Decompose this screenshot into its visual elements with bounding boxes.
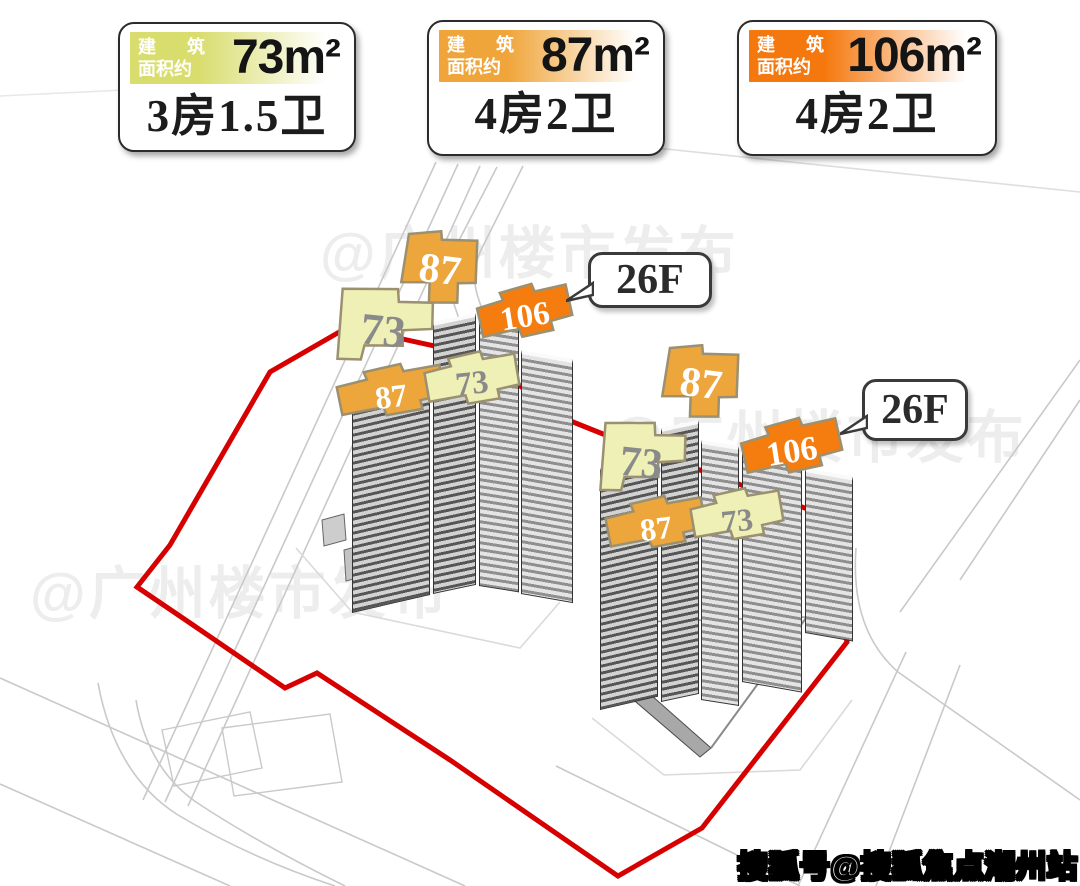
floor-area-label: 73 (421, 346, 523, 422)
tower-slab (701, 440, 739, 706)
floor-area-label: 73 (687, 483, 787, 556)
unit-type-label: 4房2卫 (439, 90, 653, 140)
floor-area-number: 73 (617, 439, 664, 486)
watermark-sohu: 搜狐号@搜狐焦点潮州站 (738, 842, 1078, 886)
floor-area-label: 87 (652, 337, 750, 431)
area-band: 建 筑 面积约 73m² (130, 32, 344, 84)
bubble-tail-icon (840, 414, 868, 436)
area-prefix: 建 筑 面积约 (130, 36, 205, 81)
unit-type-label: 3房1.5卫 (130, 92, 344, 142)
unit-card: 建 筑 面积约 87m² 4房2卫 (427, 20, 665, 156)
area-prefix: 建 筑 面积约 (749, 34, 824, 79)
floor-area-number: 106 (764, 431, 820, 473)
floor-area-number: 87 (417, 247, 464, 294)
area-prefix: 建 筑 面积约 (439, 34, 514, 79)
floor-count-text: 26F (881, 386, 949, 434)
floor-area-number: 73 (358, 306, 407, 355)
floor-area-number: 87 (638, 510, 674, 546)
bubble-tail-icon (566, 281, 594, 303)
unit-type-label: 4房2卫 (749, 90, 985, 140)
tower-slab (805, 468, 853, 641)
area-band: 建 筑 面积约 87m² (439, 30, 653, 82)
tower-slab (521, 350, 573, 603)
area-value: 106m² (824, 30, 985, 82)
floor-area-number: 87 (678, 361, 725, 408)
floor-area-number: 73 (719, 502, 754, 537)
area-value: 87m² (514, 30, 653, 82)
floor-count-text: 26F (616, 256, 684, 304)
floor-count-bubble: 26F (862, 379, 968, 441)
floor-area-number: 73 (454, 366, 490, 402)
unit-card: 建 筑 面积约 73m² 3房1.5卫 (118, 22, 356, 152)
parcel-rectangles (162, 712, 342, 796)
area-band: 建 筑 面积约 106m² (749, 30, 985, 82)
floor-count-bubble: 26F (588, 252, 712, 308)
area-value: 73m² (205, 32, 344, 84)
unit-card: 建 筑 面积约 106m² 4房2卫 (737, 20, 997, 156)
floor-area-number: 106 (498, 297, 552, 337)
floor-area-number: 87 (373, 378, 409, 414)
